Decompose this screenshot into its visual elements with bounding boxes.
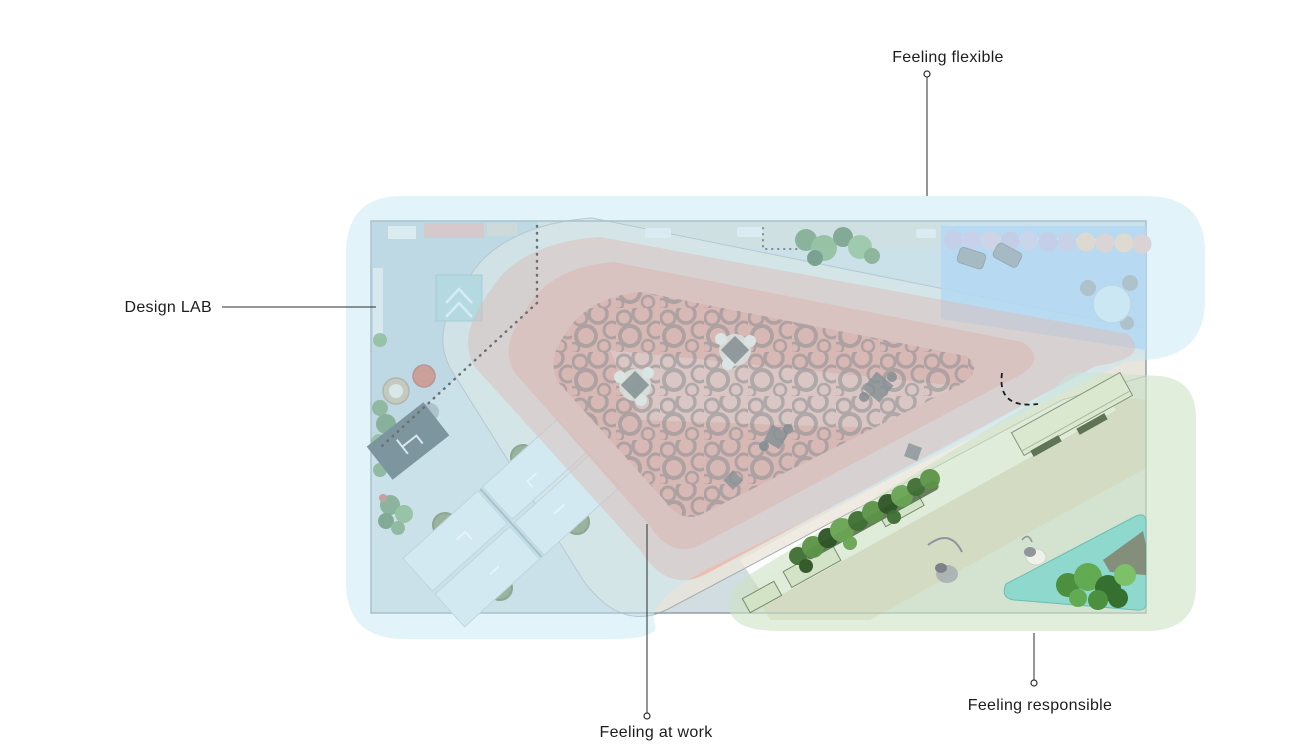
leader-dot-responsible bbox=[1031, 680, 1037, 686]
leader-dot-at-work bbox=[644, 713, 650, 719]
floor-plan-diagram: Feeling flexible Design LAB Feeling at w… bbox=[0, 0, 1314, 749]
label-feeling-flexible: Feeling flexible bbox=[892, 49, 1004, 67]
label-feeling-responsible: Feeling responsible bbox=[968, 697, 1112, 715]
floor-plan-canvas bbox=[0, 0, 1314, 749]
label-feeling-at-work: Feeling at work bbox=[600, 724, 713, 742]
leader-dot-flexible bbox=[924, 71, 930, 77]
label-design-lab: Design LAB bbox=[125, 299, 213, 317]
